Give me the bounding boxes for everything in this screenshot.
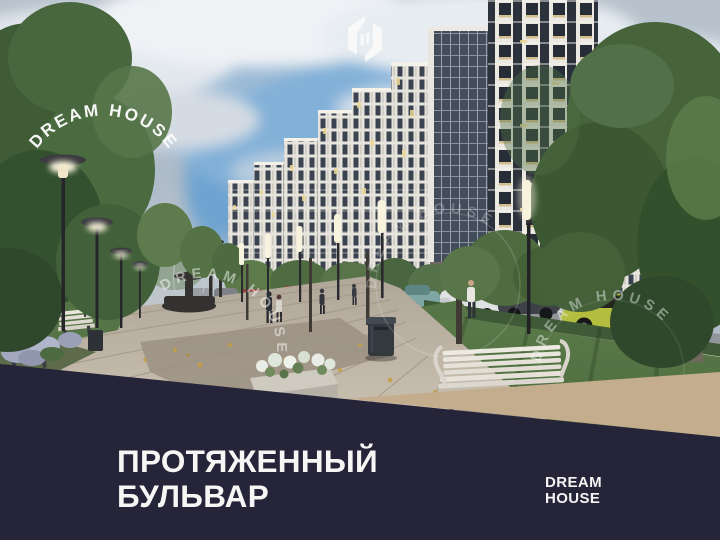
title-line-2: БУЛЬВАР (117, 479, 378, 514)
brand-line-2: HOUSE (545, 491, 602, 507)
small-bin (88, 330, 103, 351)
promo-image: DREAM HOUSE DREAM HOUSE DREAM HOUSE DREA… (0, 0, 720, 540)
brand-line-1: DREAM (545, 475, 602, 491)
trash-bin (365, 317, 397, 362)
title-line-1: ПРОТЯЖЕННЫЙ (117, 444, 378, 479)
page-title: ПРОТЯЖЕННЫЙ БУЛЬВАР (117, 444, 378, 514)
footer-brand-logo: DREAM HOUSE (545, 475, 602, 506)
